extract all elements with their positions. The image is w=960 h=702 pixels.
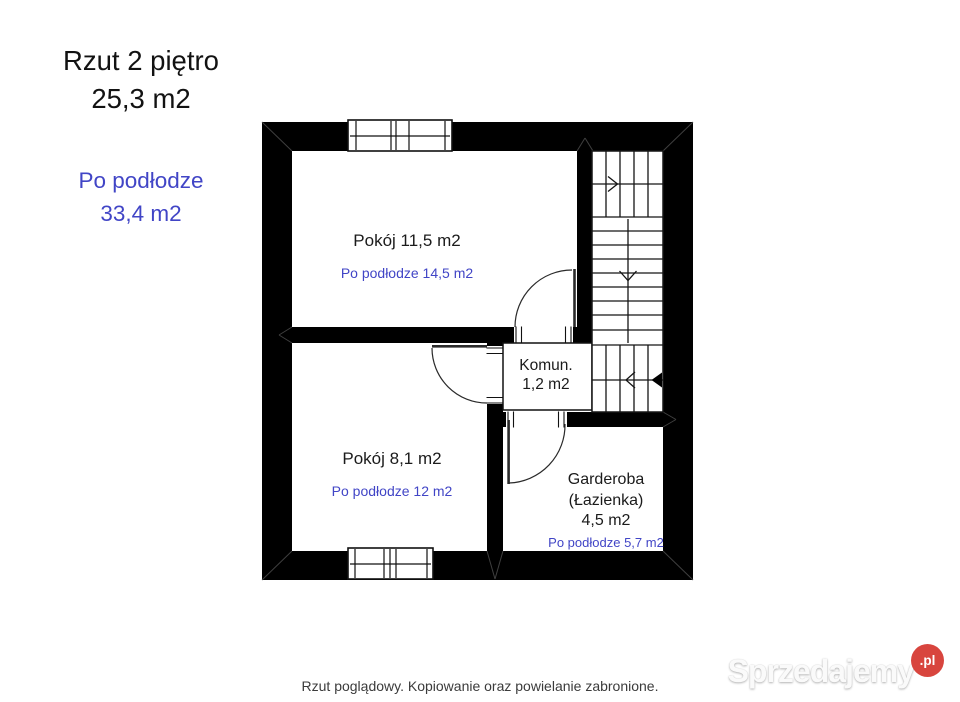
label-room-bottom: Pokój 8,1 m2 Po podłodze 12 m2: [288, 449, 496, 499]
label-hallway: Komun. 1,2 m2: [499, 356, 593, 394]
label-wardrobe: Garderoba (Łazienka) 4,5 m2 Po podłodze …: [520, 470, 692, 550]
hallway-area: 1,2 m2: [499, 375, 593, 394]
room-top-floor-area: Po podłodze 14,5 m2: [295, 265, 519, 281]
wardrobe-name: Garderoba: [520, 470, 692, 491]
wardrobe-floor-area: Po podłodze 5,7 m2: [520, 535, 692, 550]
window-bottom: [348, 548, 433, 579]
watermark-brand: Sprzedajemy: [728, 644, 914, 690]
watermark-tld-badge: .pl: [911, 644, 944, 677]
label-room-top: Pokój 11,5 m2 Po podłodze 14,5 m2: [295, 231, 519, 281]
wardrobe-alt-name: (Łazienka): [520, 491, 692, 512]
watermark: Sprzedajemy .pl: [728, 644, 944, 690]
hallway-name: Komun.: [499, 356, 593, 375]
wardrobe-area: 4,5 m2: [520, 511, 692, 532]
room-bottom-floor-area: Po podłodze 12 m2: [288, 483, 496, 499]
room-top-name: Pokój 11,5 m2: [295, 231, 519, 251]
staircase: [592, 151, 663, 412]
room-bottom-name: Pokój 8,1 m2: [288, 449, 496, 469]
window-top: [348, 120, 452, 151]
floor-plan-canvas: [0, 0, 960, 702]
door-room-top: [515, 269, 575, 327]
floor-plan-page: Rzut 2 piętro 25,3 m2 Po podłodze 33,4 m…: [0, 0, 960, 702]
door-room-bottom: [432, 346, 487, 403]
